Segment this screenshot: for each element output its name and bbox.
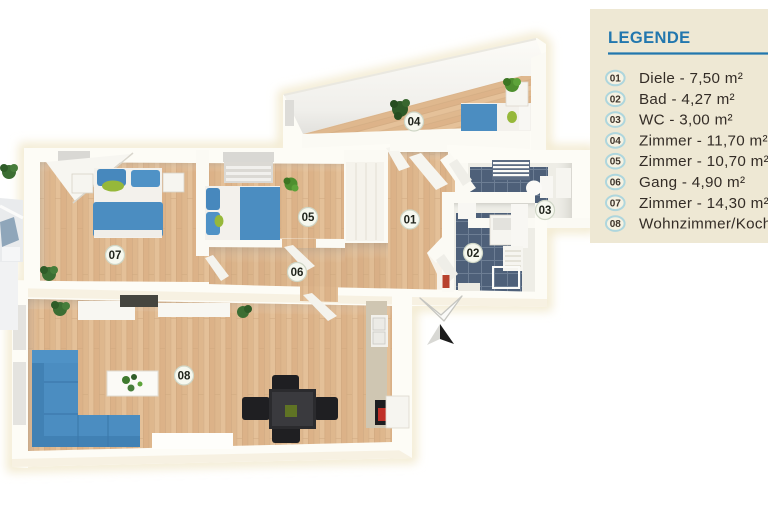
svg-text:01: 01 — [610, 74, 622, 85]
svg-text:Zimmer - 14,30 m²: Zimmer - 14,30 m² — [639, 195, 768, 212]
svg-text:06: 06 — [291, 267, 304, 279]
svg-text:LEGENDE: LEGENDE — [608, 29, 691, 47]
svg-text:02: 02 — [467, 248, 480, 260]
svg-text:06: 06 — [610, 178, 622, 189]
svg-text:05: 05 — [302, 212, 315, 224]
svg-text:Gang - 4,90 m²: Gang - 4,90 m² — [639, 174, 745, 191]
svg-text:Diele - 7,50 m²: Diele - 7,50 m² — [639, 70, 743, 87]
svg-text:07: 07 — [610, 198, 622, 209]
svg-text:07: 07 — [109, 250, 122, 262]
svg-text:Wohnzimmer/Kochnische: Wohnzimmer/Kochnische — [639, 216, 768, 233]
svg-text:Zimmer - 11,70 m²: Zimmer - 11,70 m² — [639, 132, 768, 149]
svg-text:04: 04 — [408, 117, 421, 129]
svg-text:08: 08 — [178, 371, 191, 383]
svg-text:Bad - 4,27 m²: Bad - 4,27 m² — [639, 91, 735, 108]
svg-text:03: 03 — [610, 115, 622, 126]
svg-text:Zimmer - 10,70 m²: Zimmer - 10,70 m² — [639, 153, 768, 170]
svg-text:04: 04 — [610, 136, 622, 147]
svg-text:02: 02 — [610, 94, 622, 105]
svg-text:01: 01 — [404, 215, 417, 227]
svg-text:08: 08 — [610, 219, 622, 230]
svg-text:WC - 3,00 m²: WC - 3,00 m² — [639, 112, 733, 129]
svg-text:03: 03 — [539, 205, 552, 217]
svg-text:05: 05 — [610, 157, 622, 168]
